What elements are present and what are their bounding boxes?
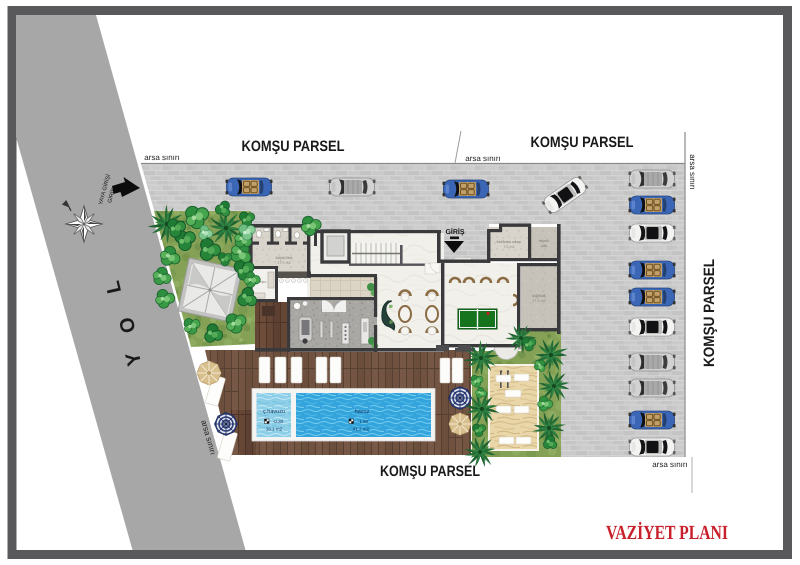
svg-text:KOMŞU PARSEL: KOMŞU PARSEL	[531, 134, 634, 151]
svg-text:oda: oda	[541, 244, 548, 248]
svg-text:havuz: havuz	[355, 409, 370, 415]
svg-text:17.3 m2: 17.3 m2	[532, 299, 546, 303]
svg-text:KOMŞU PARSEL: KOMŞU PARSEL	[242, 138, 345, 155]
svg-text:ç.havuzu: ç.havuzu	[263, 409, 285, 415]
svg-text:-0.30: -0.30	[273, 419, 284, 424]
svg-text:teknik: teknik	[539, 239, 549, 243]
svg-text:16.1 m2: 16.1 m2	[266, 427, 283, 432]
svg-text:41.2 m2: 41.2 m2	[353, 427, 370, 432]
svg-text:KOMŞU PARSEL: KOMŞU PARSEL	[380, 463, 480, 480]
svg-text:arsa sınırı: arsa sınırı	[144, 153, 180, 162]
svg-text:soyunma: soyunma	[276, 255, 294, 260]
svg-text:arsa sınırı: arsa sınırı	[465, 154, 501, 163]
svg-text:-1.50: -1.50	[358, 419, 369, 424]
svg-text:VAZİYET PLANI: VAZİYET PLANI	[606, 521, 728, 544]
svg-text:arsa sınırı: arsa sınırı	[652, 460, 688, 469]
svg-text:7.5 m2: 7.5 m2	[504, 245, 515, 249]
svg-text:17.5 m2: 17.5 m2	[277, 261, 291, 265]
svg-text:sığınak: sığınak	[532, 293, 546, 298]
svg-text:arsa sınırı: arsa sınırı	[688, 154, 697, 190]
svg-text:bekleme odası: bekleme odası	[497, 240, 522, 244]
svg-text:KOMŞU PARSEL: KOMŞU PARSEL	[701, 259, 718, 367]
svg-text:GİRİŞ: GİRİŞ	[445, 228, 464, 236]
